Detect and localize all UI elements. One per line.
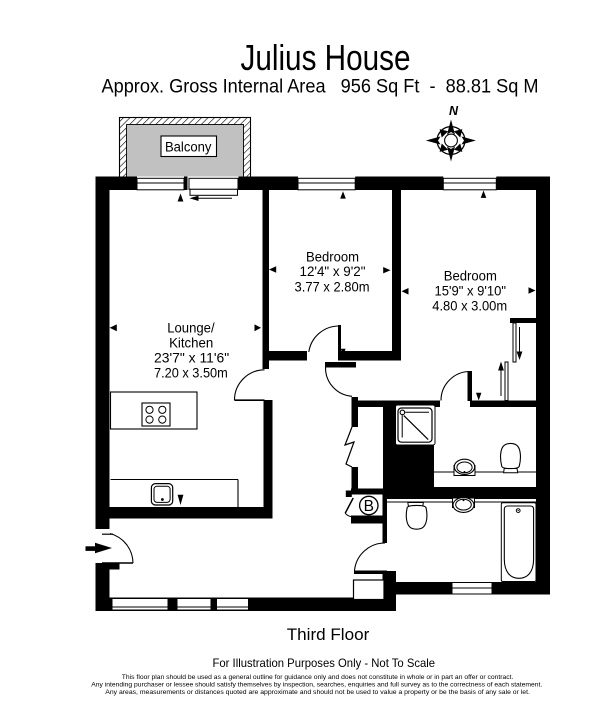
svg-text:Bedroom: Bedroom bbox=[444, 267, 497, 283]
svg-text:For Illustration Purposes Only: For Illustration Purposes Only - Not To … bbox=[212, 657, 435, 670]
svg-text:Any areas, measurements or dis: Any areas, measurements or distances quo… bbox=[105, 689, 530, 696]
svg-text:7.20 x 3.50m: 7.20 x 3.50m bbox=[154, 365, 228, 381]
svg-text:Balcony: Balcony bbox=[165, 140, 212, 155]
svg-text:Third Floor: Third Floor bbox=[287, 625, 370, 644]
svg-text:Lounge/: Lounge/ bbox=[167, 320, 215, 336]
svg-text:12'4" x 9'2": 12'4" x 9'2" bbox=[300, 263, 366, 279]
svg-text:Approx. Gross Internal Area: Approx. Gross Internal Area 956 Sq Ft - … bbox=[102, 76, 539, 98]
svg-text:3.77 x 2.80m: 3.77 x 2.80m bbox=[295, 279, 370, 295]
svg-text:4.80 x 3.00m: 4.80 x 3.00m bbox=[432, 297, 507, 313]
svg-text:15'9" x 9'10": 15'9" x 9'10" bbox=[435, 282, 507, 298]
svg-text:Julius House: Julius House bbox=[241, 37, 411, 78]
svg-text:Kitchen: Kitchen bbox=[169, 335, 213, 351]
svg-text:Any intending purchaser or les: Any intending purchaser or lessee should… bbox=[91, 682, 542, 689]
svg-text:N: N bbox=[449, 104, 459, 118]
svg-text:B: B bbox=[364, 498, 374, 515]
svg-text:This floor plan should be used: This floor plan should be used as a gene… bbox=[122, 674, 514, 681]
svg-text:23'7" x 11'6": 23'7" x 11'6" bbox=[154, 349, 229, 365]
